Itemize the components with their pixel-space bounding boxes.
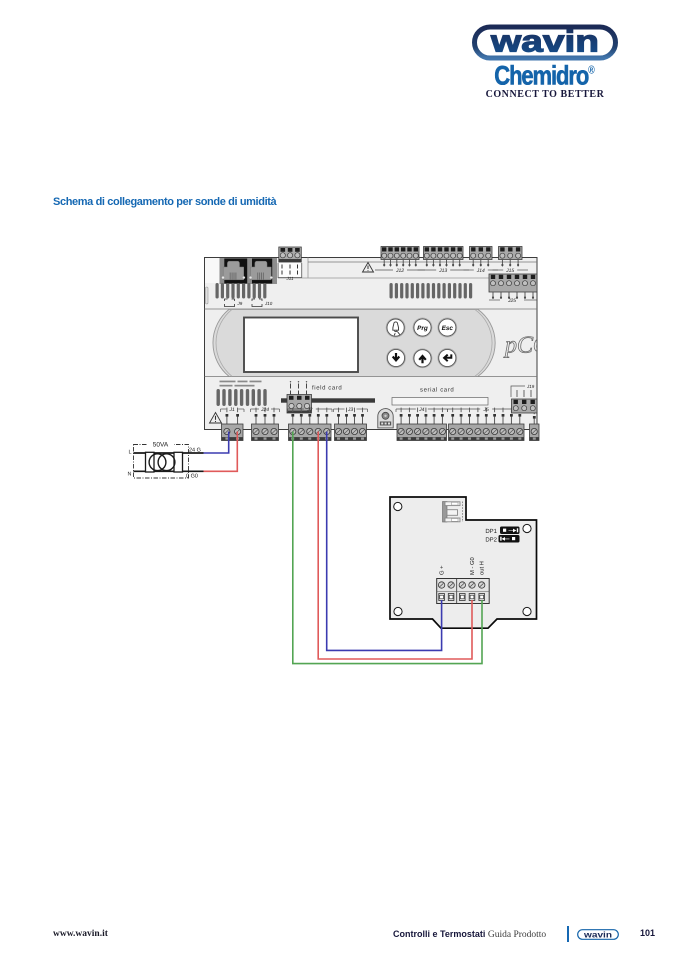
svg-text:J11: J11 — [286, 276, 294, 281]
svg-text:J19: J19 — [526, 384, 535, 389]
svg-text:0 G0: 0 G0 — [186, 474, 198, 480]
svg-text:J1: J1 — [229, 407, 236, 413]
svg-text:DP1: DP1 — [485, 528, 497, 535]
svg-text:J24: J24 — [260, 407, 269, 413]
svg-text:G +: G + — [439, 565, 446, 575]
svg-text:field card: field card — [312, 385, 342, 392]
svg-text:pCO: pCO — [503, 333, 550, 359]
svg-text:L: L — [128, 450, 131, 456]
svg-text:serial card: serial card — [420, 387, 454, 394]
svg-text:Esc: Esc — [442, 325, 454, 332]
svg-text:out H: out H — [480, 561, 486, 575]
svg-text:24 G: 24 G — [189, 448, 201, 454]
svg-text:J2: J2 — [306, 407, 313, 413]
svg-text:N: N — [128, 472, 132, 478]
svg-text:M - G0: M - G0 — [469, 557, 476, 575]
svg-text:J10: J10 — [264, 301, 273, 306]
svg-text:J5: J5 — [483, 407, 490, 413]
svg-text:J15: J15 — [505, 268, 514, 274]
svg-text:J14: J14 — [476, 268, 485, 274]
svg-text:Prg: Prg — [417, 325, 428, 332]
svg-text:J13: J13 — [438, 268, 447, 274]
svg-text:J4: J4 — [418, 407, 425, 413]
svg-text:DP2: DP2 — [485, 537, 497, 544]
svg-text:wavin: wavin — [583, 929, 612, 939]
svg-text:J9: J9 — [237, 301, 243, 306]
svg-text:50VA: 50VA — [153, 442, 169, 449]
svg-text:J25: J25 — [507, 298, 516, 304]
svg-text:J12: J12 — [395, 268, 404, 274]
svg-text:J3: J3 — [347, 407, 354, 413]
